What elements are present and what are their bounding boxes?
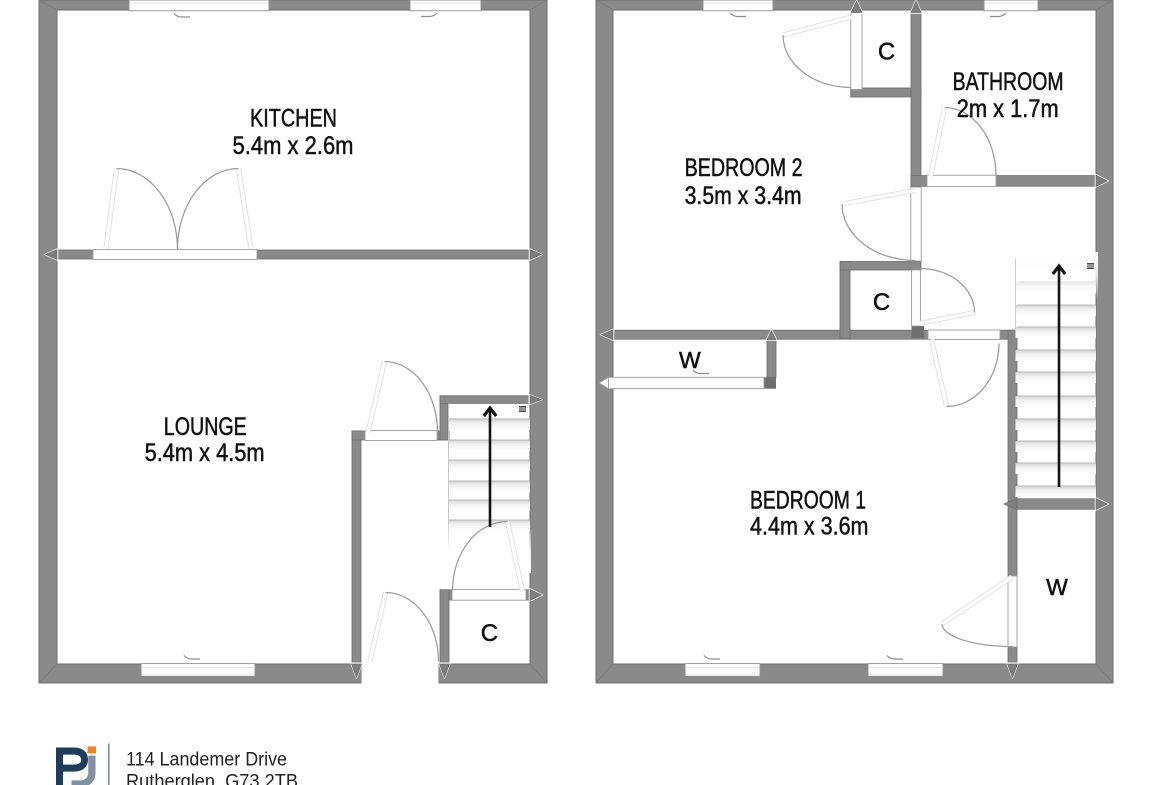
svg-text:C: C xyxy=(878,39,895,66)
svg-text:W: W xyxy=(1046,574,1068,600)
svg-text:C: C xyxy=(873,289,890,316)
svg-text:5.4m x 2.6m: 5.4m x 2.6m xyxy=(233,132,354,160)
svg-text:KITCHEN: KITCHEN xyxy=(250,105,337,133)
svg-text:C: C xyxy=(481,620,498,647)
svg-text:3.5m x 3.4m: 3.5m x 3.4m xyxy=(685,182,802,210)
svg-text:BEDROOM 2: BEDROOM 2 xyxy=(685,154,803,182)
svg-text:LOUNGE: LOUNGE xyxy=(164,413,247,441)
svg-text:W: W xyxy=(679,347,701,373)
svg-text:114 Landemer Drive: 114 Landemer Drive xyxy=(126,749,287,771)
svg-text:4.4m x 3.6m: 4.4m x 3.6m xyxy=(750,513,869,541)
svg-text:2m x 1.7m: 2m x 1.7m xyxy=(957,95,1059,123)
svg-text:BATHROOM: BATHROOM xyxy=(953,68,1064,96)
svg-text:5.4m x 4.5m: 5.4m x 4.5m xyxy=(145,439,265,467)
svg-text:BEDROOM 1: BEDROOM 1 xyxy=(750,487,866,515)
svg-text:Rutherglen, G73 2TB: Rutherglen, G73 2TB xyxy=(126,771,298,785)
